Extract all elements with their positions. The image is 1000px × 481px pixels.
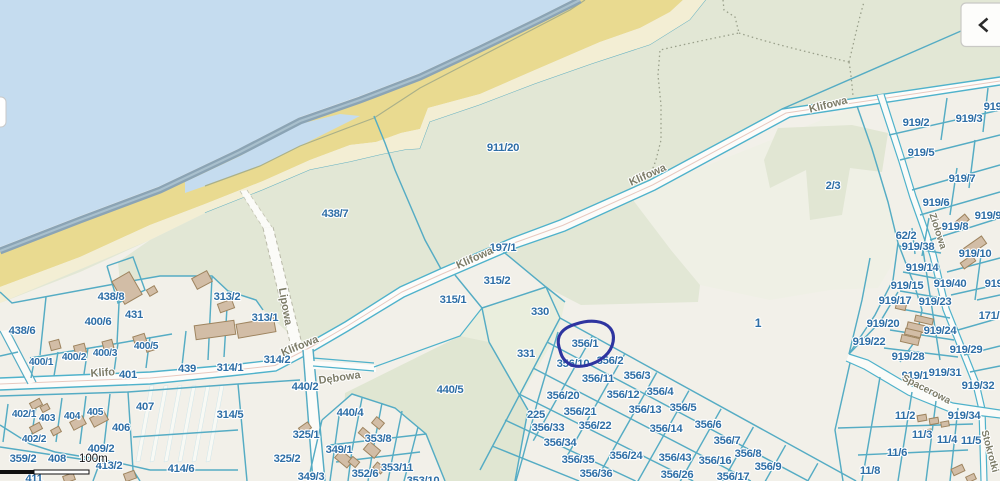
svg-text:314/1: 314/1	[217, 362, 244, 374]
svg-text:919/22: 919/22	[853, 336, 886, 348]
svg-text:438/8: 438/8	[98, 291, 125, 303]
svg-text:197/1: 197/1	[490, 242, 517, 254]
svg-text:225: 225	[527, 409, 545, 421]
svg-text:356/7: 356/7	[714, 435, 741, 447]
svg-text:400/6: 400/6	[85, 316, 112, 328]
svg-text:400/1: 400/1	[29, 357, 54, 368]
svg-text:356/34: 356/34	[544, 437, 578, 449]
svg-text:919/8: 919/8	[942, 221, 969, 233]
svg-text:919/28: 919/28	[892, 351, 925, 363]
svg-text:919/1: 919/1	[984, 101, 1000, 113]
svg-text:313/1: 313/1	[252, 312, 279, 324]
svg-text:356/1: 356/1	[572, 338, 599, 350]
svg-text:438/6: 438/6	[9, 325, 36, 337]
svg-text:356/36: 356/36	[580, 468, 613, 480]
svg-text:919/23: 919/23	[919, 296, 952, 308]
svg-text:313/2: 313/2	[214, 291, 241, 303]
svg-text:919/32: 919/32	[962, 380, 995, 392]
svg-text:400/3: 400/3	[93, 348, 118, 359]
svg-text:440/2: 440/2	[292, 381, 319, 393]
svg-text:356/17: 356/17	[717, 471, 750, 481]
svg-text:11/8: 11/8	[860, 465, 880, 477]
svg-text:11/6: 11/6	[887, 447, 907, 459]
svg-text:356/20: 356/20	[547, 390, 580, 402]
svg-text:402/2: 402/2	[22, 434, 47, 445]
svg-text:11/4: 11/4	[937, 434, 958, 446]
svg-text:356/9: 356/9	[755, 461, 782, 473]
svg-text:100m: 100m	[79, 453, 108, 465]
svg-text:356/35: 356/35	[562, 454, 595, 466]
svg-text:356/24: 356/24	[610, 450, 644, 462]
svg-text:356/33: 356/33	[532, 422, 565, 434]
svg-text:356/11: 356/11	[582, 373, 614, 385]
svg-text:330: 330	[531, 306, 549, 318]
svg-text:919/38: 919/38	[902, 241, 935, 253]
svg-text:356/4: 356/4	[647, 386, 675, 398]
svg-text:356/43: 356/43	[659, 452, 692, 464]
svg-text:439: 439	[178, 363, 196, 375]
svg-text:919/9: 919/9	[975, 210, 1000, 222]
svg-text:356/13: 356/13	[629, 404, 662, 416]
svg-text:315/1: 315/1	[440, 294, 467, 306]
svg-text:405: 405	[87, 407, 104, 418]
svg-text:919/14: 919/14	[906, 262, 940, 274]
svg-text:919/24: 919/24	[924, 325, 958, 337]
svg-text:403: 403	[39, 413, 56, 424]
svg-text:919/3: 919/3	[956, 113, 983, 125]
svg-text:325/1: 325/1	[293, 429, 320, 441]
svg-text:440/4: 440/4	[337, 407, 365, 419]
svg-text:406: 406	[112, 422, 130, 434]
svg-text:353/10: 353/10	[407, 475, 440, 481]
svg-text:356/6: 356/6	[695, 419, 722, 431]
svg-text:171/1: 171/1	[979, 310, 1000, 322]
svg-text:352/6: 352/6	[352, 468, 379, 480]
svg-text:356/3: 356/3	[624, 370, 651, 382]
svg-text:331: 331	[517, 348, 535, 360]
svg-text:356/16: 356/16	[699, 455, 732, 467]
svg-text:353/8: 353/8	[365, 433, 392, 445]
svg-text:356/5: 356/5	[670, 402, 697, 414]
svg-text:325/2: 325/2	[274, 453, 301, 465]
svg-text:919/5: 919/5	[908, 147, 935, 159]
svg-text:11/5: 11/5	[961, 435, 981, 447]
svg-text:440/5: 440/5	[437, 384, 464, 396]
svg-text:919/40: 919/40	[934, 278, 967, 290]
svg-text:315/2: 315/2	[484, 275, 511, 287]
svg-text:438/7: 438/7	[322, 208, 349, 220]
svg-text:11/3: 11/3	[912, 429, 932, 441]
svg-text:919/10: 919/10	[959, 248, 992, 260]
svg-text:400/2: 400/2	[62, 352, 87, 363]
svg-text:356/12: 356/12	[607, 389, 640, 401]
svg-text:919/1: 919/1	[985, 278, 1000, 290]
svg-text:919/6: 919/6	[923, 197, 950, 209]
svg-text:401: 401	[119, 369, 137, 381]
svg-text:431: 431	[125, 309, 143, 321]
svg-text:314/5: 314/5	[217, 409, 244, 421]
svg-text:919/31: 919/31	[929, 367, 962, 379]
svg-text:356/21: 356/21	[564, 406, 597, 418]
svg-text:414/6: 414/6	[168, 463, 195, 475]
svg-text:919/2: 919/2	[903, 117, 930, 129]
svg-text:349/3: 349/3	[298, 471, 325, 481]
svg-text:356/14: 356/14	[650, 423, 684, 435]
svg-text:400/5: 400/5	[134, 341, 159, 352]
svg-text:919/20: 919/20	[867, 318, 900, 330]
svg-text:359/2: 359/2	[10, 453, 37, 465]
svg-text:349/1: 349/1	[326, 444, 353, 456]
svg-text:353/11: 353/11	[381, 462, 413, 474]
svg-text:919/15: 919/15	[891, 280, 924, 292]
svg-text:404: 404	[64, 411, 81, 422]
svg-text:402/1: 402/1	[12, 409, 37, 420]
svg-text:1: 1	[755, 316, 762, 330]
svg-text:911/20: 911/20	[487, 142, 519, 154]
svg-text:11/2: 11/2	[895, 410, 915, 422]
svg-text:356/22: 356/22	[579, 420, 612, 432]
svg-text:919/34: 919/34	[948, 410, 982, 422]
svg-text:2/3: 2/3	[826, 180, 841, 192]
svg-text:407: 407	[136, 401, 154, 413]
svg-text:408: 408	[48, 453, 66, 465]
svg-text:919/29: 919/29	[950, 344, 983, 356]
svg-text:919/7: 919/7	[949, 173, 976, 185]
svg-text:Klifo: Klifo	[90, 366, 115, 380]
svg-text:356/26: 356/26	[661, 469, 694, 481]
svg-text:919/17: 919/17	[879, 295, 912, 307]
svg-text:356/8: 356/8	[735, 448, 762, 460]
